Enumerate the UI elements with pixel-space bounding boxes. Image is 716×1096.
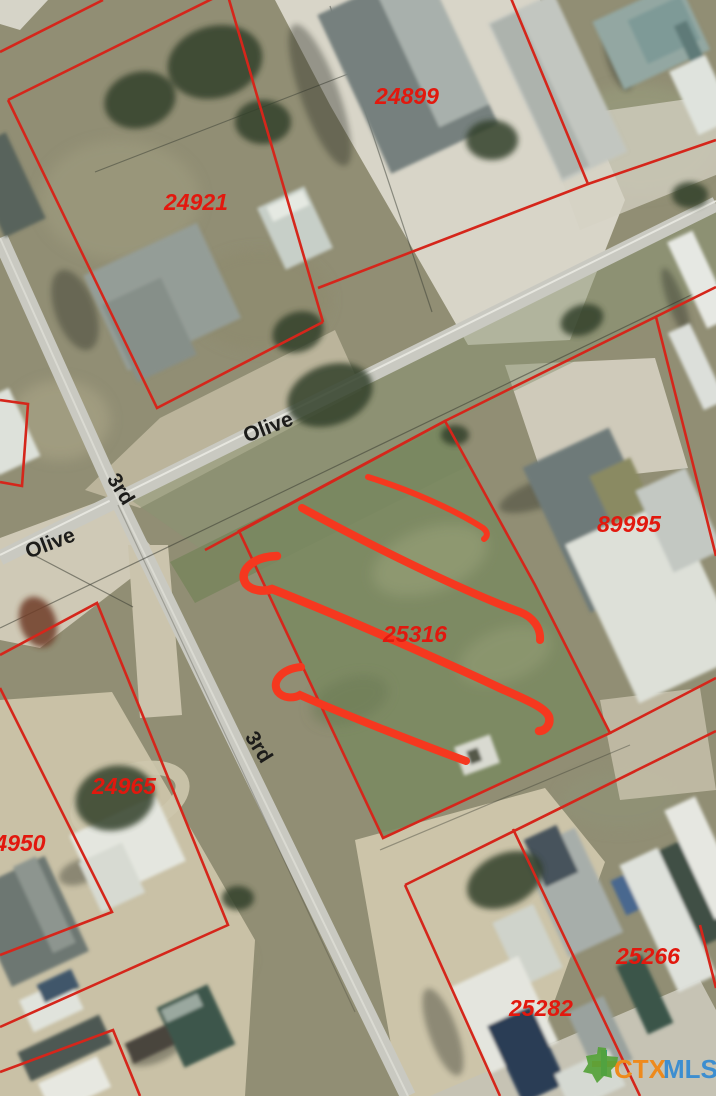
parcel-label-24950-partial: 4950 (0, 830, 46, 856)
parcel-label-25266: 25266 (615, 943, 680, 969)
logo-text-ctx: CTX (614, 1054, 667, 1084)
aerial-map-screenshot: 24899 24921 89995 25316 24965 4950 25266… (0, 0, 716, 1096)
parcel-label-24965: 24965 (91, 773, 157, 799)
dirt-area (600, 688, 716, 800)
parcel-label-24899: 24899 (374, 83, 439, 109)
parcel-label-25316: 25316 (382, 621, 447, 647)
parcel-label-25282: 25282 (508, 995, 573, 1021)
parcel-label-89995: 89995 (597, 511, 662, 537)
aerial-map: 24899 24921 89995 25316 24965 4950 25266… (0, 0, 716, 1096)
parcel-label-24921: 24921 (163, 189, 228, 215)
logo-text-mls: MLS (663, 1054, 716, 1084)
